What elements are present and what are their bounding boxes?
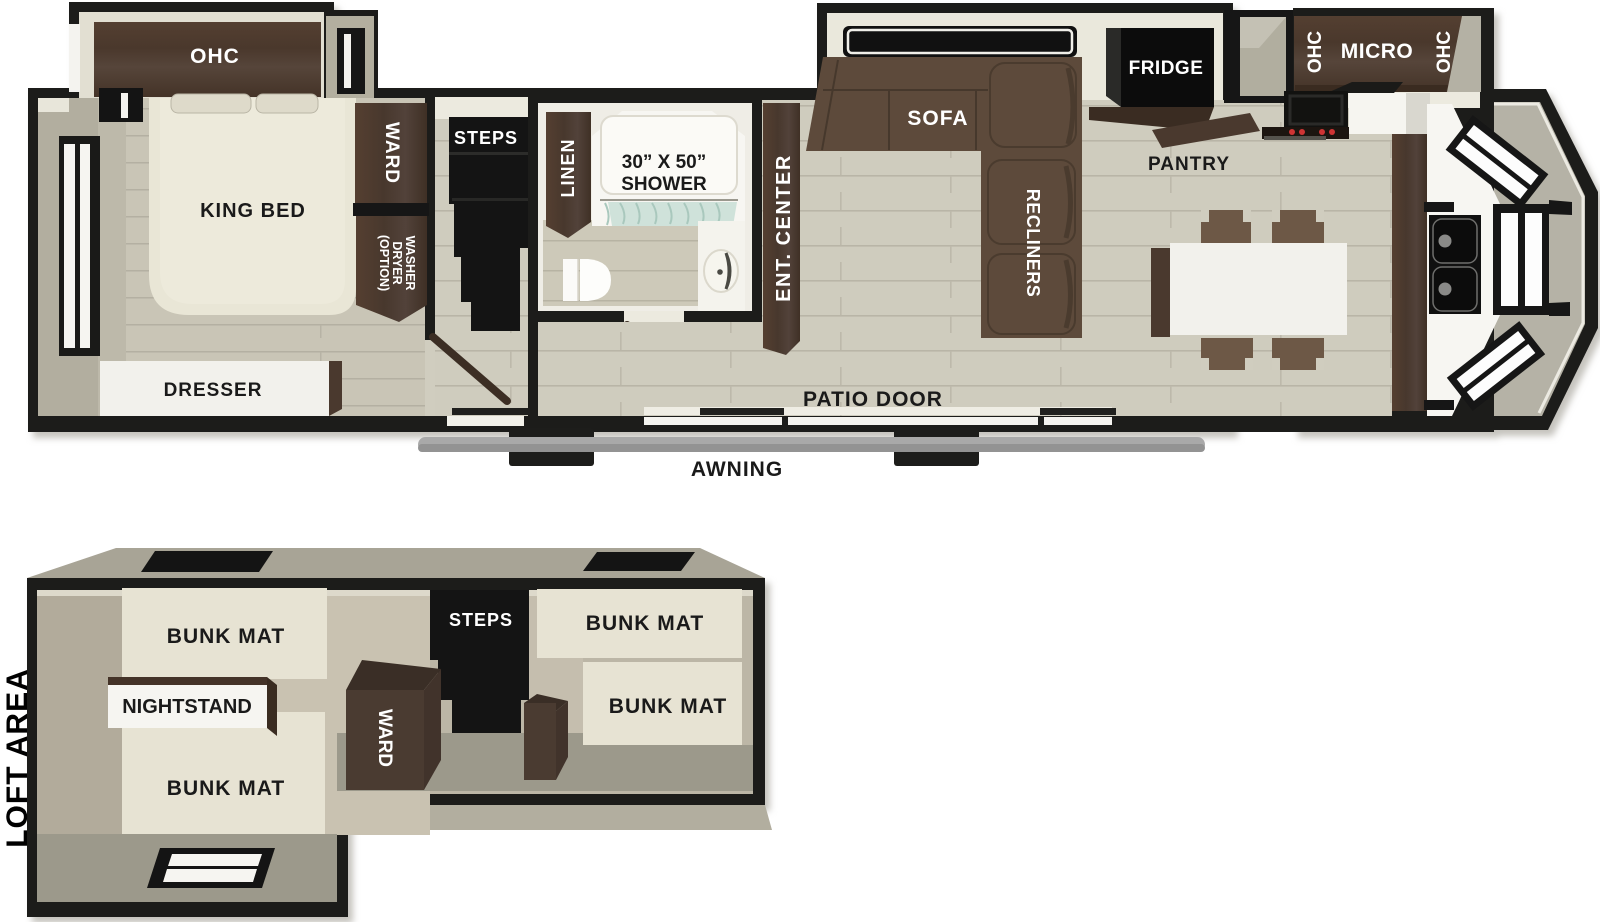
- svg-text:BUNK MAT: BUNK MAT: [586, 612, 704, 635]
- svg-text:SHOWER: SHOWER: [621, 174, 707, 195]
- svg-text:STEPS: STEPS: [454, 128, 518, 148]
- svg-text:DRESSER: DRESSER: [164, 380, 263, 401]
- svg-text:SOFA: SOFA: [907, 107, 968, 130]
- svg-text:BUNK MAT: BUNK MAT: [609, 695, 727, 718]
- svg-text:BUNK MAT: BUNK MAT: [167, 625, 285, 648]
- svg-text:WARD: WARD: [381, 122, 402, 184]
- svg-text:KING BED: KING BED: [200, 200, 306, 222]
- svg-text:FRIDGE: FRIDGE: [1129, 58, 1204, 79]
- svg-text:OHC: OHC: [190, 45, 240, 68]
- svg-text:MICRO: MICRO: [1341, 40, 1414, 63]
- svg-text:PATIO DOOR: PATIO DOOR: [803, 388, 943, 411]
- svg-text:30” X 50”: 30” X 50”: [622, 152, 707, 173]
- svg-text:PANTRY: PANTRY: [1148, 154, 1230, 175]
- svg-text:WARD: WARD: [374, 709, 395, 767]
- svg-text:LINEN: LINEN: [558, 139, 578, 198]
- svg-text:DRYER: DRYER: [390, 241, 404, 284]
- svg-text:(OPTION): (OPTION): [377, 235, 391, 291]
- svg-text:RECLINERS: RECLINERS: [1023, 189, 1043, 298]
- svg-text:WASHER: WASHER: [403, 236, 417, 291]
- svg-text:ENT. CENTER: ENT. CENTER: [773, 154, 795, 302]
- svg-text:BUNK MAT: BUNK MAT: [167, 777, 285, 800]
- svg-text:STEPS: STEPS: [449, 610, 513, 630]
- svg-text:OHC: OHC: [1305, 31, 1326, 74]
- svg-text:OHC: OHC: [1434, 31, 1455, 74]
- svg-text:LOFT AREA: LOFT AREA: [1, 668, 34, 848]
- svg-text:AWNING: AWNING: [691, 458, 783, 481]
- svg-text:NIGHTSTAND: NIGHTSTAND: [122, 696, 252, 718]
